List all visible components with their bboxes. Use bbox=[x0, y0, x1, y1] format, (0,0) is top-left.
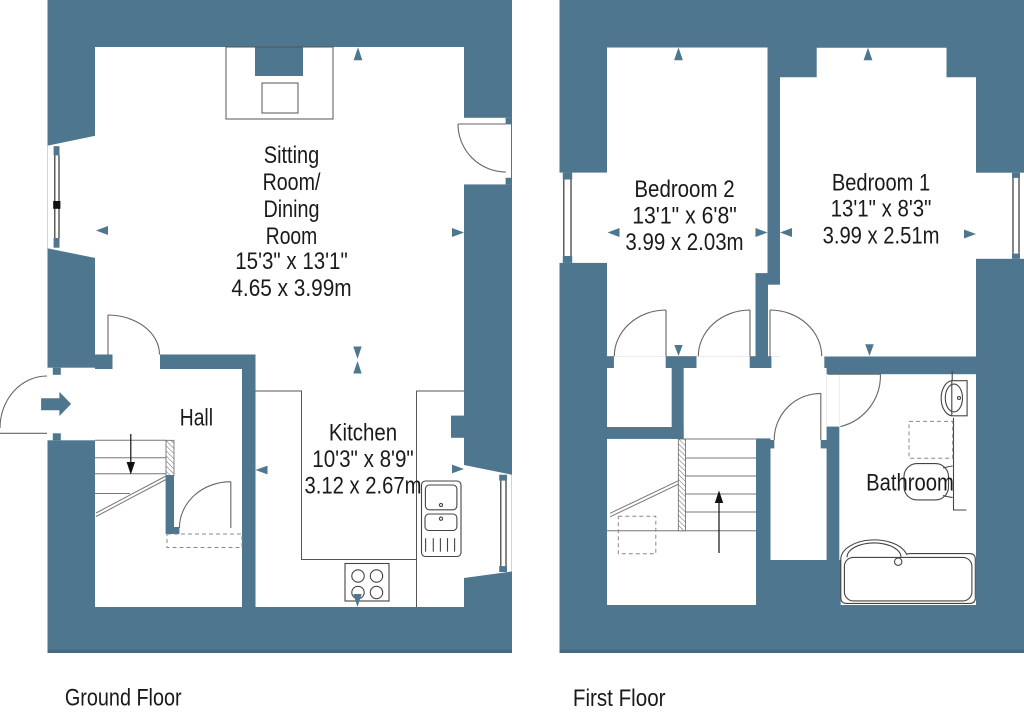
svg-text:Kitchen: Kitchen bbox=[329, 420, 397, 447]
svg-text:3.12 x 2.67m: 3.12 x 2.67m bbox=[305, 473, 422, 500]
svg-text:Bedroom 1: Bedroom 1 bbox=[832, 170, 930, 197]
svg-text:Room: Room bbox=[266, 223, 318, 250]
svg-text:Sitting: Sitting bbox=[264, 142, 320, 169]
svg-text:10'3" x 8'9": 10'3" x 8'9" bbox=[312, 446, 414, 473]
svg-text:4.65 x 3.99m: 4.65 x 3.99m bbox=[231, 275, 351, 302]
svg-text:Bathroom: Bathroom bbox=[866, 470, 954, 497]
svg-text:Hall: Hall bbox=[180, 404, 213, 431]
svg-text:13'1" x 8'3": 13'1" x 8'3" bbox=[831, 196, 932, 223]
svg-text:Room/: Room/ bbox=[263, 169, 321, 196]
svg-text:Ground Floor: Ground Floor bbox=[65, 685, 182, 712]
svg-text:13'1" x 6'8": 13'1" x 6'8" bbox=[632, 203, 737, 230]
svg-text:3.99 x 2.03m: 3.99 x 2.03m bbox=[625, 229, 743, 256]
svg-text:3.99 x 2.51m: 3.99 x 2.51m bbox=[823, 223, 940, 250]
svg-text:15'3" x 13'1": 15'3" x 13'1" bbox=[235, 248, 348, 275]
svg-text:Dining: Dining bbox=[264, 196, 320, 223]
svg-text:First Floor: First Floor bbox=[573, 685, 666, 712]
svg-text:Bedroom 2: Bedroom 2 bbox=[634, 176, 734, 203]
